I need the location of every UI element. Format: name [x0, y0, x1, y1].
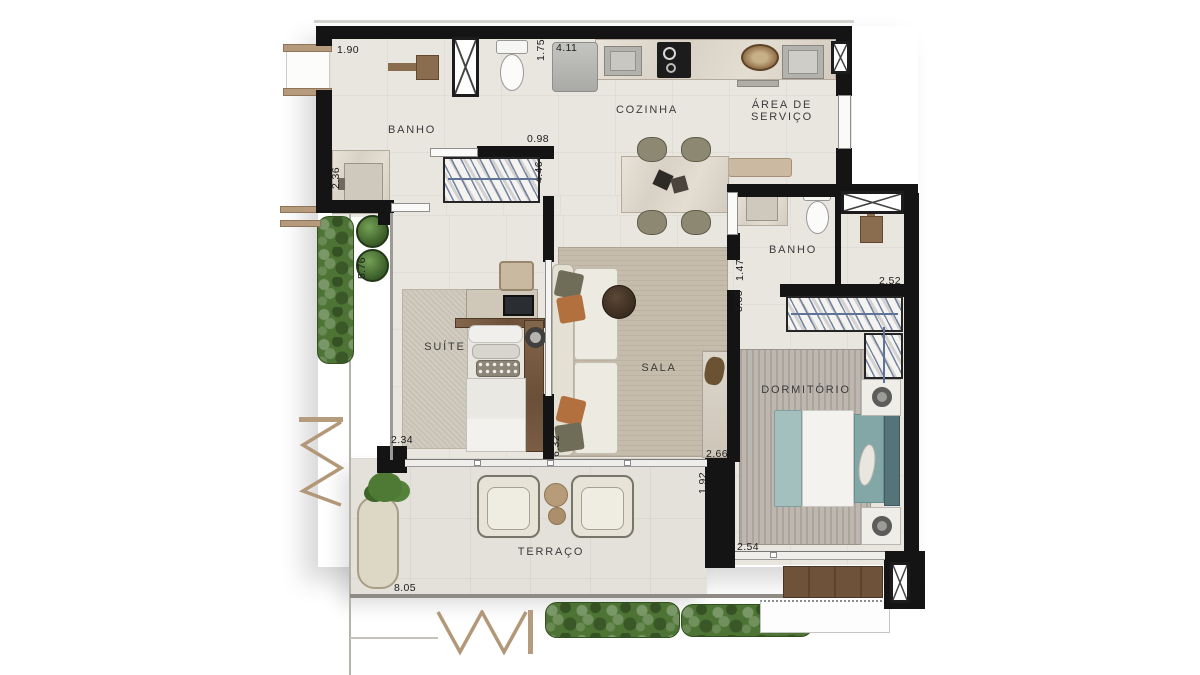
shaft — [841, 191, 904, 214]
wall — [904, 193, 919, 567]
door-suite — [391, 203, 430, 212]
dim-label: 2.36 — [330, 163, 342, 193]
shaft-x-icon — [844, 194, 901, 211]
dorm-bed-throw — [774, 410, 802, 507]
cooktop-burner-icon — [663, 47, 676, 60]
suite-lamp-icon — [525, 327, 546, 348]
room-label-banho1: BANHO — [372, 124, 452, 136]
sidewalk-strip — [760, 600, 890, 633]
terrace-plant-icon — [368, 472, 402, 502]
wardrobe-hatch — [864, 333, 903, 379]
dim-label: 2.52 — [879, 275, 901, 287]
chaise-lounge — [357, 496, 399, 589]
shower1-head-icon — [416, 55, 439, 80]
dorm-bed-duvet — [802, 410, 854, 507]
shaft — [452, 37, 479, 97]
dim-label: 3.85 — [733, 286, 745, 316]
suite-rug — [402, 289, 468, 449]
laundry-basket-icon — [741, 44, 779, 71]
area-servico-line2: SERVIÇO — [751, 111, 813, 123]
kitchen-sink-basin — [610, 51, 636, 71]
dim-label: 1.47 — [734, 255, 746, 285]
closet-rod — [448, 178, 535, 180]
service-bench — [728, 158, 792, 177]
dim-label: 4.46 — [533, 157, 545, 187]
shaft-x-icon — [455, 40, 476, 94]
shower2-head-icon — [860, 216, 883, 243]
closet-rod — [791, 313, 897, 315]
nightstand-lamp-icon — [872, 387, 892, 407]
shower1-arm-icon — [388, 63, 418, 71]
wood-deck — [783, 566, 883, 598]
hedge-bottom — [545, 602, 680, 638]
window-frame-bar — [280, 206, 321, 213]
door-handle-icon — [624, 460, 631, 466]
dim-label: 2.34 — [391, 434, 413, 446]
shaft — [890, 562, 910, 603]
window-handle-icon — [770, 552, 777, 558]
cooktop-icon — [657, 42, 691, 78]
door-banho1 — [430, 148, 478, 157]
suite-monitor-icon — [503, 295, 534, 316]
dim-label: 4.11 — [556, 42, 577, 54]
dim-label: 1.75 — [535, 35, 547, 65]
hedge-left — [317, 216, 354, 364]
dim-label: 5.76 — [356, 253, 368, 283]
room-label-terraco: TERRAÇO — [501, 546, 601, 558]
window-glass — [286, 52, 330, 88]
dining-chair-icon — [637, 210, 667, 235]
slab-edge-bottom — [350, 594, 825, 598]
suite-bed-cushion — [476, 360, 520, 377]
wall — [316, 26, 852, 39]
nightstand-lamp-icon — [872, 516, 892, 536]
trellis-icon — [297, 417, 345, 507]
suite-chair-icon — [499, 261, 534, 291]
room-label-area-servico: ÁREA DE SERVIÇO — [732, 99, 832, 123]
dim-label: 2.66 — [706, 448, 728, 460]
wall — [705, 458, 735, 568]
wardrobe-hatch — [786, 296, 903, 332]
laundry-sink-basin — [788, 50, 818, 74]
shaft — [831, 41, 850, 74]
dim-label: 2.54 — [737, 541, 759, 553]
toilet1-tank — [496, 40, 528, 54]
suite-glass-wall — [390, 213, 393, 460]
suite-bed-duvet — [466, 378, 526, 452]
shaft-x-icon — [834, 44, 847, 71]
closet-rod — [883, 327, 885, 383]
toilet1-bowl — [500, 54, 524, 91]
dim-label: 1.90 — [337, 44, 359, 56]
dorm-headboard — [884, 412, 900, 506]
window-frame-bar — [280, 220, 321, 227]
room-label-banho2: BANHO — [753, 244, 833, 256]
wall — [543, 196, 554, 262]
wall — [316, 26, 332, 46]
sofa-pillow — [556, 294, 586, 324]
dining-chair-icon — [681, 137, 711, 162]
terrace-side-table-icon — [544, 483, 568, 507]
trellis-icon — [436, 610, 540, 656]
cooktop-burner-icon — [666, 63, 676, 73]
coffee-table-icon — [602, 285, 636, 319]
service-shelf — [737, 80, 779, 87]
room-label-suite: SUÍTE — [405, 341, 485, 353]
dim-label: 6.32 — [550, 431, 562, 461]
sliding-door-suite — [545, 260, 552, 396]
room-label-cozinha: COZINHA — [597, 104, 697, 116]
door-handle-icon — [474, 460, 481, 466]
floor-plan: BANHO COZINHA ÁREA DE SERVIÇO BANHO SUÍT… — [0, 0, 1200, 675]
terrace-armchair-cushion — [581, 487, 624, 530]
closet-hatch — [443, 157, 540, 203]
slab-edge-bottom2 — [350, 637, 438, 639]
toilet2-bowl — [806, 201, 829, 234]
bath2-sink-basin — [746, 196, 778, 221]
room-label-sala: SALA — [619, 362, 699, 374]
door-banho2 — [727, 192, 738, 235]
shaft-x-icon — [893, 565, 907, 600]
dim-label: 0.98 — [527, 133, 549, 145]
dining-chair-icon — [681, 210, 711, 235]
dim-label: 1.92 — [697, 468, 709, 498]
dim-label: 8.05 — [394, 582, 416, 594]
door-servico — [838, 95, 851, 149]
terrace-armchair-cushion — [487, 487, 530, 530]
terrace-side-table-icon — [548, 507, 566, 525]
bath1-sink-basin — [344, 163, 383, 205]
dining-chair-icon — [637, 137, 667, 162]
parapet-line — [314, 20, 854, 23]
room-label-dormitorio: DORMITÓRIO — [746, 384, 866, 396]
area-servico-line1: ÁREA DE — [752, 99, 812, 111]
wall — [316, 90, 332, 213]
